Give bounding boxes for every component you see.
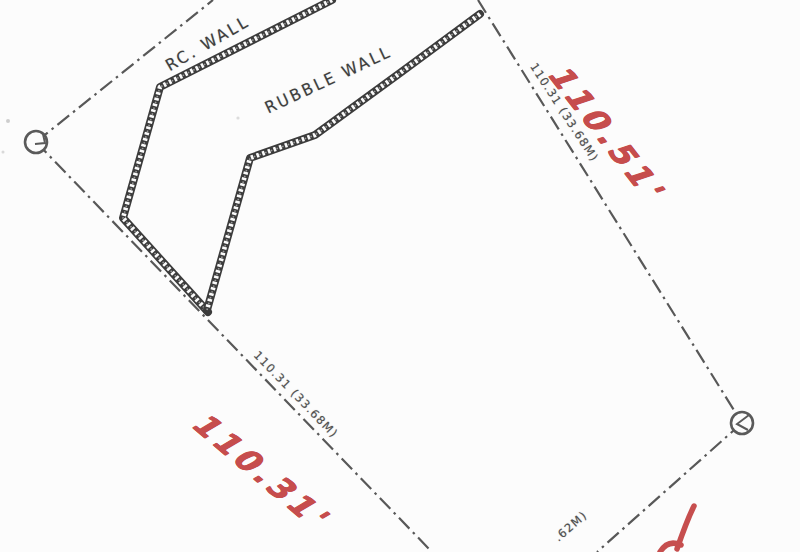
plan-linework: [0, 0, 800, 552]
left-boundary-marker: [25, 131, 47, 153]
scan-speck: [6, 119, 10, 123]
right-boundary-marker: [731, 412, 753, 434]
survey-plan-scan: RC. WALL RUBBLE WALL 110.31 (33.68M) 110…: [0, 0, 800, 552]
boundary-line-bottom-right: [597, 423, 742, 552]
scan-speck: [2, 151, 5, 154]
boundary-line-right: [478, 0, 742, 423]
scan-speck: [236, 116, 239, 119]
rubble-wall-hatch: [207, 14, 480, 310]
